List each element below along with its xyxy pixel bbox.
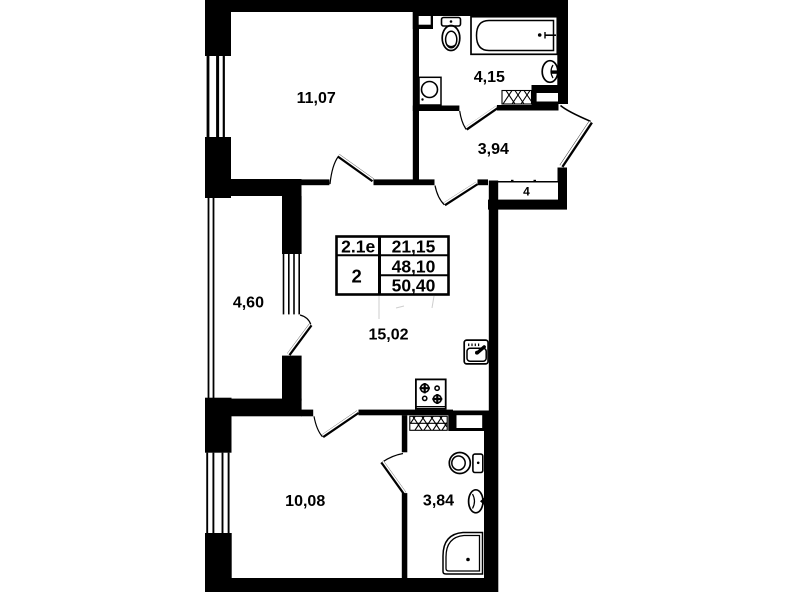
- svg-text:2: 2: [351, 265, 361, 286]
- svg-text:4,15: 4,15: [474, 69, 505, 86]
- svg-text:21,15: 21,15: [392, 236, 436, 256]
- svg-text:50,40: 50,40: [392, 275, 436, 295]
- svg-text:3,84: 3,84: [423, 493, 454, 510]
- svg-text:15,02: 15,02: [368, 327, 408, 344]
- svg-text:4,60: 4,60: [233, 295, 264, 312]
- svg-text:2.1e: 2.1e: [341, 236, 375, 256]
- svg-text:11,07: 11,07: [297, 90, 336, 107]
- svg-text:48,10: 48,10: [392, 256, 436, 276]
- svg-text:10,08: 10,08: [285, 493, 325, 510]
- svg-text:3,94: 3,94: [478, 141, 509, 158]
- svg-text:4: 4: [523, 185, 530, 199]
